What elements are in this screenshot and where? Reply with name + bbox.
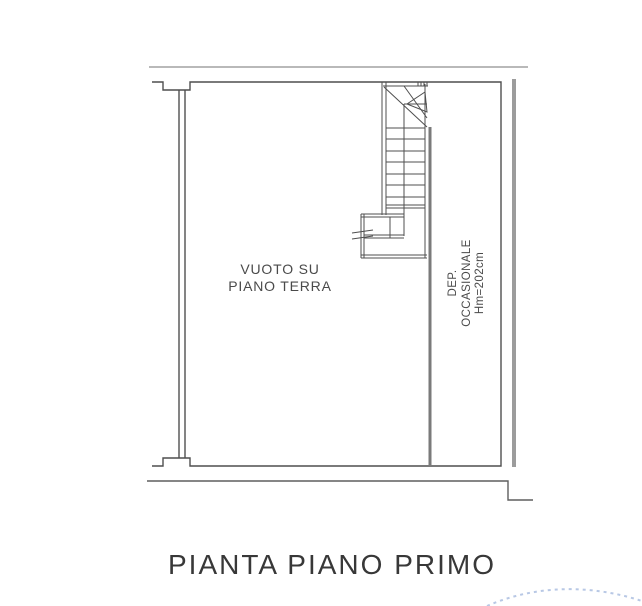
stair-direction-arrow-icon <box>384 86 427 127</box>
room-label-dep-height: Hm=202cm <box>474 228 488 338</box>
lower-boundary-line <box>147 481 533 500</box>
room-label-void: VUOTO SU PIANO TERRA <box>210 261 350 295</box>
room-label-void-line2: PIANO TERRA <box>210 278 350 295</box>
staircase <box>382 82 428 258</box>
floor-plan-linework <box>0 0 642 606</box>
room-label-dep-line1: DEP. <box>447 228 461 338</box>
floor-plan-sheet: VUOTO SU PIANO TERRA DEP. OCCASIONALE Hm… <box>0 0 642 606</box>
room-label-dep: DEP. OCCASIONALE Hm=202cm <box>447 228 489 338</box>
stair-treads <box>386 128 425 208</box>
room-label-dep-line2: OCCASIONALE <box>461 228 475 338</box>
sheet-title: PIANTA PIANO PRIMO <box>168 549 488 581</box>
room-label-void-line1: VUOTO SU <box>210 261 350 278</box>
understair-closet <box>352 214 427 258</box>
watermark-stamp-arc <box>487 589 642 606</box>
